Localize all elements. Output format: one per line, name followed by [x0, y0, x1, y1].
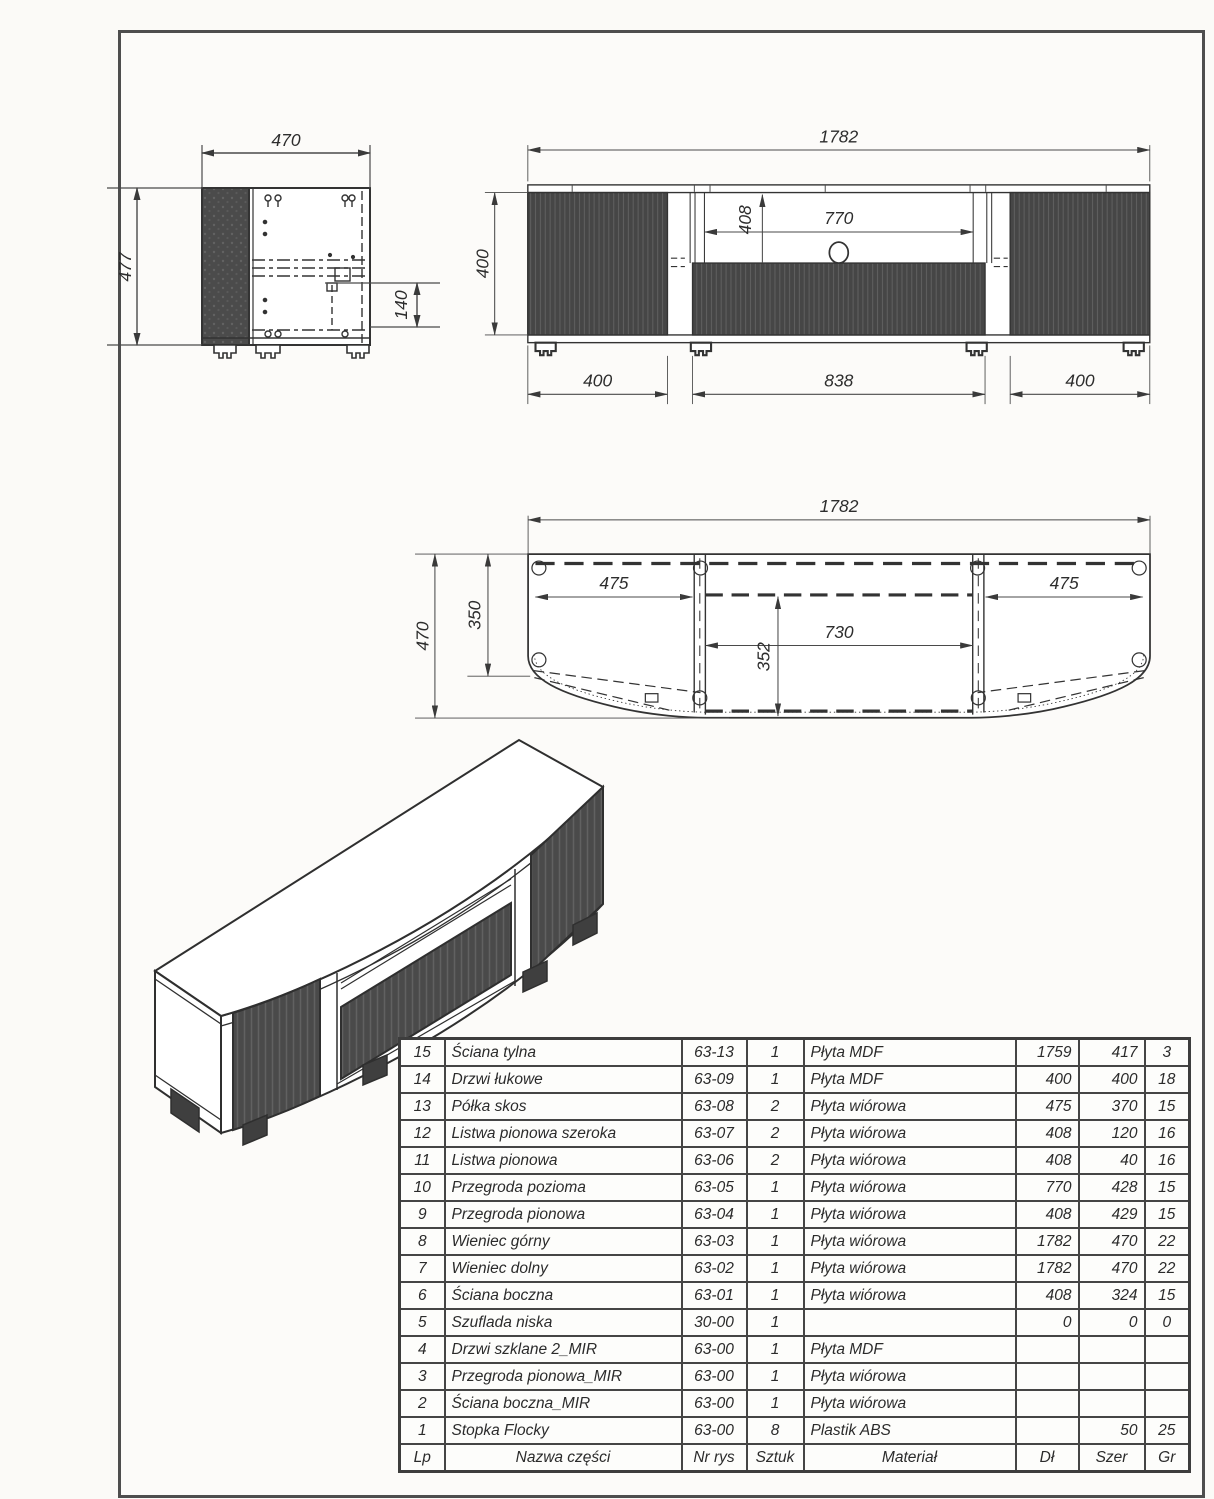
- table-row: 3Przegroda pionowa_MIR63-001Płyta wiórow…: [400, 1363, 1190, 1390]
- table-cell: 770: [1016, 1174, 1079, 1201]
- table-cell: 63-01: [682, 1282, 747, 1309]
- table-cell: Płyta wiórowa: [804, 1120, 1016, 1147]
- table-header-cell: Szer: [1079, 1444, 1145, 1472]
- table-cell: [804, 1309, 1016, 1336]
- table-cell: Płyta MDF: [804, 1039, 1016, 1067]
- table-cell: 408: [1016, 1201, 1079, 1228]
- table-row: 6Ściana boczna63-011Płyta wiórowa4083241…: [400, 1282, 1190, 1309]
- table-cell: 50: [1079, 1417, 1145, 1444]
- table-row: 5Szuflada niska30-001000: [400, 1309, 1190, 1336]
- table-row: 9Przegroda pionowa63-041Płyta wiórowa408…: [400, 1201, 1190, 1228]
- table-cell: 8: [400, 1228, 445, 1255]
- table-cell: Płyta wiórowa: [804, 1282, 1016, 1309]
- table-cell: Płyta MDF: [804, 1336, 1016, 1363]
- table-cell: 7: [400, 1255, 445, 1282]
- table-header-cell: Nazwa części: [445, 1444, 682, 1472]
- table-cell: 417: [1079, 1039, 1145, 1067]
- table-cell: Półka skos: [445, 1093, 682, 1120]
- table-cell: 1759: [1016, 1039, 1079, 1067]
- table-cell: 470: [1079, 1228, 1145, 1255]
- table-cell: 15: [1145, 1174, 1190, 1201]
- dim-front-bottom-center: 838: [824, 371, 853, 391]
- table-cell: Drzwi łukowe: [445, 1066, 682, 1093]
- table-cell: 2: [747, 1120, 804, 1147]
- table-cell: 408: [1016, 1147, 1079, 1174]
- dim-front-bottom-left: 400: [583, 371, 612, 391]
- table-cell: 324: [1079, 1282, 1145, 1309]
- table-cell: 3: [1145, 1039, 1190, 1067]
- table-cell: Stopka Flocky: [445, 1417, 682, 1444]
- table-cell: 63-05: [682, 1174, 747, 1201]
- dim-top-niche-width: 730: [825, 622, 854, 642]
- table-cell: [1145, 1390, 1190, 1417]
- table-cell: 63-13: [682, 1039, 747, 1067]
- table-cell: 1: [747, 1282, 804, 1309]
- table-cell: 63-00: [682, 1417, 747, 1444]
- parts-table-body: 15Ściana tylna63-131Płyta MDF1759417314D…: [400, 1039, 1190, 1472]
- table-row: 2Ściana boczna_MIR63-001Płyta wiórowa: [400, 1390, 1190, 1417]
- table-cell: 1: [747, 1228, 804, 1255]
- table-cell: 18: [1145, 1066, 1190, 1093]
- table-header-cell: Sztuk: [747, 1444, 804, 1472]
- table-cell: 22: [1145, 1228, 1190, 1255]
- table-cell: 1: [400, 1417, 445, 1444]
- table-cell: Ściana boczna_MIR: [445, 1390, 682, 1417]
- dim-top-depth: 470: [412, 621, 432, 650]
- dim-front-bottom-right: 400: [1065, 371, 1094, 391]
- table-cell: 8: [747, 1417, 804, 1444]
- table-cell: 63-09: [682, 1066, 747, 1093]
- table-cell: 63-04: [682, 1201, 747, 1228]
- table-cell: Listwa pionowa szeroka: [445, 1120, 682, 1147]
- table-cell: Wieniec górny: [445, 1228, 682, 1255]
- table-cell: 2: [747, 1147, 804, 1174]
- table-cell: 15: [1145, 1201, 1190, 1228]
- table-cell: 1: [747, 1363, 804, 1390]
- table-cell: 408: [1016, 1120, 1079, 1147]
- table-cell: [1079, 1363, 1145, 1390]
- table-cell: Płyta MDF: [804, 1066, 1016, 1093]
- dim-top-back-depth: 350: [465, 600, 485, 629]
- table-cell: 428: [1079, 1174, 1145, 1201]
- table-cell: 16: [1145, 1147, 1190, 1174]
- table-cell: 0: [1079, 1309, 1145, 1336]
- front-view-drawing: 1782 400 408 770 400 838 400: [450, 115, 1162, 423]
- table-row: 12Listwa pionowa szeroka63-072Płyta wiór…: [400, 1120, 1190, 1147]
- dim-side-drawer: 140: [391, 290, 411, 319]
- table-cell: 63-07: [682, 1120, 747, 1147]
- dim-front-total: 1782: [819, 126, 858, 146]
- table-cell: 4: [400, 1336, 445, 1363]
- table-cell: Ściana tylna: [445, 1039, 682, 1067]
- table-cell: Płyta wiórowa: [804, 1228, 1016, 1255]
- table-row: 1Stopka Flocky63-008Plastik ABS5025: [400, 1417, 1190, 1444]
- table-cell: 63-00: [682, 1336, 747, 1363]
- table-cell: 63-03: [682, 1228, 747, 1255]
- table-cell: [1016, 1363, 1079, 1390]
- dim-top-shelf-right: 475: [1050, 573, 1079, 593]
- table-cell: Przegroda pozioma: [445, 1174, 682, 1201]
- table-cell: 11: [400, 1147, 445, 1174]
- table-cell: 120: [1079, 1120, 1145, 1147]
- table-cell: Wieniec dolny: [445, 1255, 682, 1282]
- top-view-drawing: 1782 470 350 475 475 730 352: [408, 478, 1164, 738]
- table-cell: [1079, 1390, 1145, 1417]
- table-cell: 30-00: [682, 1309, 747, 1336]
- table-cell: Przegroda pionowa_MIR: [445, 1363, 682, 1390]
- table-cell: 63-06: [682, 1147, 747, 1174]
- table-cell: Przegroda pionowa: [445, 1201, 682, 1228]
- table-cell: 10: [400, 1174, 445, 1201]
- table-cell: 1: [747, 1174, 804, 1201]
- table-cell: 1: [747, 1201, 804, 1228]
- table-cell: 470: [1079, 1255, 1145, 1282]
- table-cell: 12: [400, 1120, 445, 1147]
- table-row: 15Ściana tylna63-131Płyta MDF17594173: [400, 1039, 1190, 1067]
- table-cell: 15: [1145, 1093, 1190, 1120]
- table-cell: 1782: [1016, 1228, 1079, 1255]
- table-cell: 2: [747, 1093, 804, 1120]
- table-cell: 63-00: [682, 1363, 747, 1390]
- table-cell: 1: [747, 1066, 804, 1093]
- table-cell: 1: [747, 1039, 804, 1067]
- table-cell: [1145, 1363, 1190, 1390]
- dim-top-niche-depth: 352: [754, 642, 774, 671]
- table-cell: 13: [400, 1093, 445, 1120]
- front-view-feet: [536, 343, 1144, 356]
- table-cell: 408: [1016, 1282, 1079, 1309]
- table-cell: 6: [400, 1282, 445, 1309]
- table-cell: Płyta wiórowa: [804, 1093, 1016, 1120]
- table-cell: Płyta wiórowa: [804, 1174, 1016, 1201]
- table-cell: 63-08: [682, 1093, 747, 1120]
- table-row: 10Przegroda pozioma63-051Płyta wiórowa77…: [400, 1174, 1190, 1201]
- table-cell: Płyta wiórowa: [804, 1390, 1016, 1417]
- table-row: 8Wieniec górny63-031Płyta wiórowa1782470…: [400, 1228, 1190, 1255]
- table-cell: 370: [1079, 1093, 1145, 1120]
- table-cell: Płyta wiórowa: [804, 1201, 1016, 1228]
- table-cell: 3: [400, 1363, 445, 1390]
- table-cell: Płyta wiórowa: [804, 1147, 1016, 1174]
- table-cell: 40: [1079, 1147, 1145, 1174]
- table-cell: 9: [400, 1201, 445, 1228]
- dim-top-shelf-left: 475: [599, 573, 628, 593]
- table-row: 11Listwa pionowa63-062Płyta wiórowa40840…: [400, 1147, 1190, 1174]
- table-cell: 1: [747, 1255, 804, 1282]
- table-cell: 63-00: [682, 1390, 747, 1417]
- table-cell: 400: [1016, 1066, 1079, 1093]
- table-header-cell: Gr: [1145, 1444, 1190, 1472]
- table-header-cell: Dł: [1016, 1444, 1079, 1472]
- table-cell: Plastik ABS: [804, 1417, 1016, 1444]
- table-cell: 5: [400, 1309, 445, 1336]
- table-cell: [1145, 1336, 1190, 1363]
- table-cell: 429: [1079, 1201, 1145, 1228]
- table-cell: 16: [1145, 1120, 1190, 1147]
- table-cell: 22: [1145, 1255, 1190, 1282]
- table-cell: Ściana boczna: [445, 1282, 682, 1309]
- table-cell: 14: [400, 1066, 445, 1093]
- side-view-drawing: 470 477 140: [95, 105, 445, 377]
- table-cell: [1016, 1336, 1079, 1363]
- table-cell: 1782: [1016, 1255, 1079, 1282]
- parts-table: 15Ściana tylna63-131Płyta MDF1759417314D…: [398, 1037, 1190, 1473]
- table-cell: 1: [747, 1336, 804, 1363]
- table-header-cell: Materiał: [804, 1444, 1016, 1472]
- dim-side-height: 477: [115, 251, 135, 281]
- table-header-cell: Nr rys: [682, 1444, 747, 1472]
- table-cell: [1016, 1417, 1079, 1444]
- table-cell: 15: [400, 1039, 445, 1067]
- side-view-feet: [214, 345, 369, 358]
- table-cell: Szuflada niska: [445, 1309, 682, 1336]
- table-cell: 25: [1145, 1417, 1190, 1444]
- table-cell: Listwa pionowa: [445, 1147, 682, 1174]
- dim-top-total: 1782: [820, 496, 859, 516]
- table-row: 7Wieniec dolny63-021Płyta wiórowa1782470…: [400, 1255, 1190, 1282]
- table-cell: 475: [1016, 1093, 1079, 1120]
- table-cell: 15: [1145, 1282, 1190, 1309]
- table-cell: 0: [1145, 1309, 1190, 1336]
- table-row: 4Drzwi szklane 2_MIR63-001Płyta MDF: [400, 1336, 1190, 1363]
- table-cell: 63-02: [682, 1255, 747, 1282]
- dim-front-opening-height: 408: [735, 205, 755, 234]
- table-cell: 400: [1079, 1066, 1145, 1093]
- table-cell: 1: [747, 1390, 804, 1417]
- table-cell: [1079, 1336, 1145, 1363]
- table-cell: 0: [1016, 1309, 1079, 1336]
- table-cell: [1016, 1390, 1079, 1417]
- side-view-cabinet: [202, 188, 370, 345]
- table-cell: 1: [747, 1309, 804, 1336]
- table-header-cell: Lp: [400, 1444, 445, 1472]
- table-cell: Płyta wiórowa: [804, 1255, 1016, 1282]
- dim-front-door-height: 400: [472, 249, 492, 278]
- table-cell: Drzwi szklane 2_MIR: [445, 1336, 682, 1363]
- table-cell: Płyta wiórowa: [804, 1363, 1016, 1390]
- table-cell: 2: [400, 1390, 445, 1417]
- table-row: 14Drzwi łukowe63-091Płyta MDF40040018: [400, 1066, 1190, 1093]
- table-header-row: LpNazwa częściNr rysSztukMateriałDłSzerG…: [400, 1444, 1190, 1472]
- dim-front-niche-width: 770: [824, 208, 853, 228]
- table-row: 13Półka skos63-082Płyta wiórowa47537015: [400, 1093, 1190, 1120]
- dim-side-width: 470: [271, 130, 300, 150]
